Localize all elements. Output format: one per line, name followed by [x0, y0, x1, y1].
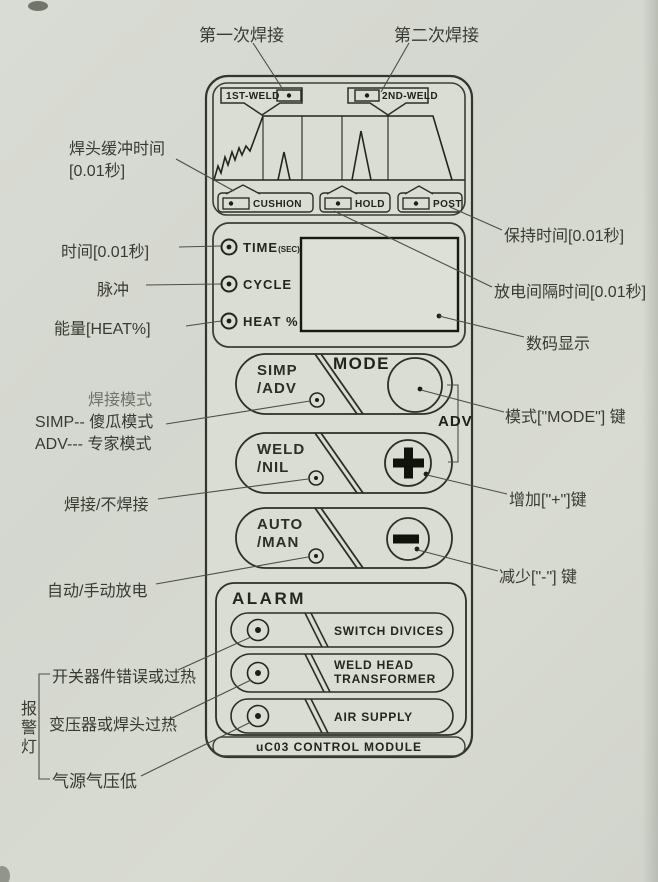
callout-pulse: 脉冲 [97, 276, 129, 300]
time-led-label: TIME(SEC) [243, 240, 300, 255]
cushion-tag-label: CUSHION [253, 199, 302, 210]
first-weld-led-dot [287, 93, 291, 97]
diagram-canvas: 第一次焊接 第二次焊接 焊头缓冲时间 [0.01秒] 时间[0.01秒] 脉冲 … [0, 0, 658, 882]
callout-decrease-key: 减少["-"] 键 [499, 563, 577, 587]
callout-increase-key: 增加["+"]键 [509, 486, 587, 510]
simp-adv-button-label: SIMP /ADV [257, 362, 298, 398]
callout-air-pressure-low: 气源气压低 [52, 767, 137, 792]
weld-nil-button-label: WELD /NIL [257, 441, 305, 477]
callout-alarm-lamps: 报警灯 [14, 700, 38, 757]
callout-weld-or-not: 焊接/不焊接 [64, 491, 148, 515]
digital-display-screen [301, 238, 458, 331]
auto-man-button-label: AUTO /MAN [257, 516, 303, 552]
callout-weld-mode: 焊接模式 [88, 386, 152, 410]
second-weld-led-dot [365, 93, 369, 97]
callout-hold-time: 保持时间[0.01秒] [504, 222, 624, 246]
cycle-led-label: CYCLE [243, 277, 292, 292]
callout-cushion-time: 焊头缓冲时间 [0.01秒] [69, 139, 165, 183]
scan-artifact [0, 866, 10, 882]
callout-digital-display: 数码显示 [526, 330, 590, 354]
callout-time: 时间[0.01秒] [61, 238, 149, 262]
heat-led-label: HEAT % [243, 314, 299, 329]
callout-transformer-overheat: 变压器或焊头过热 [49, 711, 177, 735]
hold-tag-label: HOLD [355, 199, 385, 210]
post-tag-label: POST [433, 199, 462, 210]
alarm-switch-label: SWITCH DIVICES [334, 624, 444, 638]
alarm-air-label: AIR SUPPLY [334, 710, 413, 724]
post-led-dot [414, 201, 418, 205]
module-footer-label: uC03 CONTROL MODULE [213, 740, 465, 754]
alarm-title: ALARM [232, 589, 306, 609]
cushion-led-dot [229, 201, 233, 205]
adv-bracket-label: ADV [438, 413, 473, 430]
mode-label: MODE [333, 354, 390, 374]
scan-artifact [28, 1, 48, 11]
callout-first-weld: 第一次焊接 [199, 21, 284, 46]
callout-adv-mode: ADV--- 专家模式 [35, 430, 151, 454]
callout-auto-manual: 自动/手动放电 [47, 577, 147, 601]
alarm-weldhead-label: WELD HEAD TRANSFORMER [334, 658, 436, 686]
second-weld-tag-label: 2ND-WELD [382, 91, 438, 102]
callout-mode-key: 模式["MODE"] 键 [505, 403, 626, 427]
scan-edge-shadow [642, 0, 658, 882]
minus-icon [393, 535, 419, 544]
hold-led-dot [336, 201, 340, 205]
first-weld-tag-label: 1ST-WELD [226, 91, 280, 102]
callout-discharge-interval: 放电间隔时间[0.01秒] [494, 278, 646, 302]
callout-switch-error: 开关器件错误或过热 [52, 663, 196, 687]
callout-simp-mode: SIMP-- 傻瓜模式 [35, 408, 153, 432]
callout-energy: 能量[HEAT%] [54, 315, 151, 339]
callout-second-weld: 第二次焊接 [394, 21, 479, 46]
